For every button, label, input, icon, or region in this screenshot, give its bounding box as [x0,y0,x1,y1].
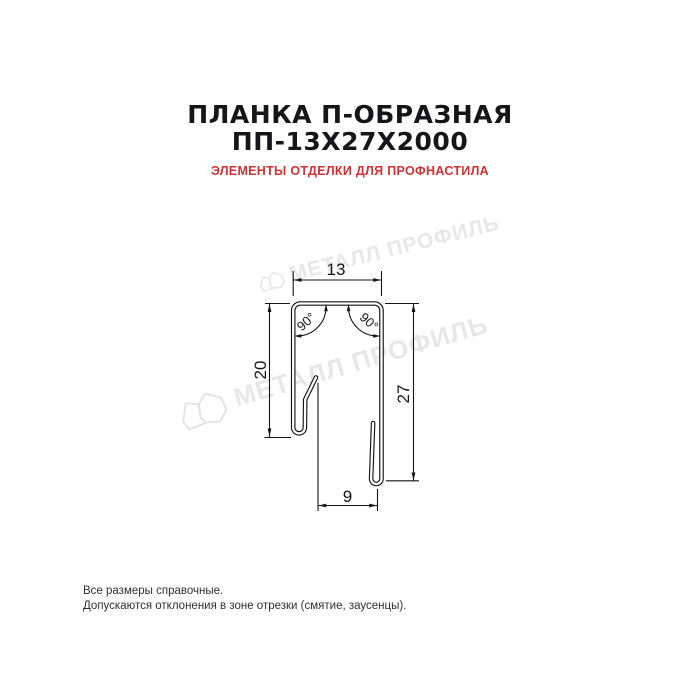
dimension-right-height: 27 [394,385,413,404]
footer-note-line1: Все размеры справочные. [83,584,406,599]
footer-notes: Все размеры справочные. Допускаются откл… [83,584,406,614]
dimension-bottom-width: 9 [343,487,352,506]
footer-note-line2: Допускаются отклонения в зоне отрезки (с… [83,599,406,614]
dimension-top-width: 13 [327,260,346,279]
page: { "page": { "background": "#ffffff" }, "… [0,0,700,700]
dimension-left-height: 20 [251,361,270,380]
